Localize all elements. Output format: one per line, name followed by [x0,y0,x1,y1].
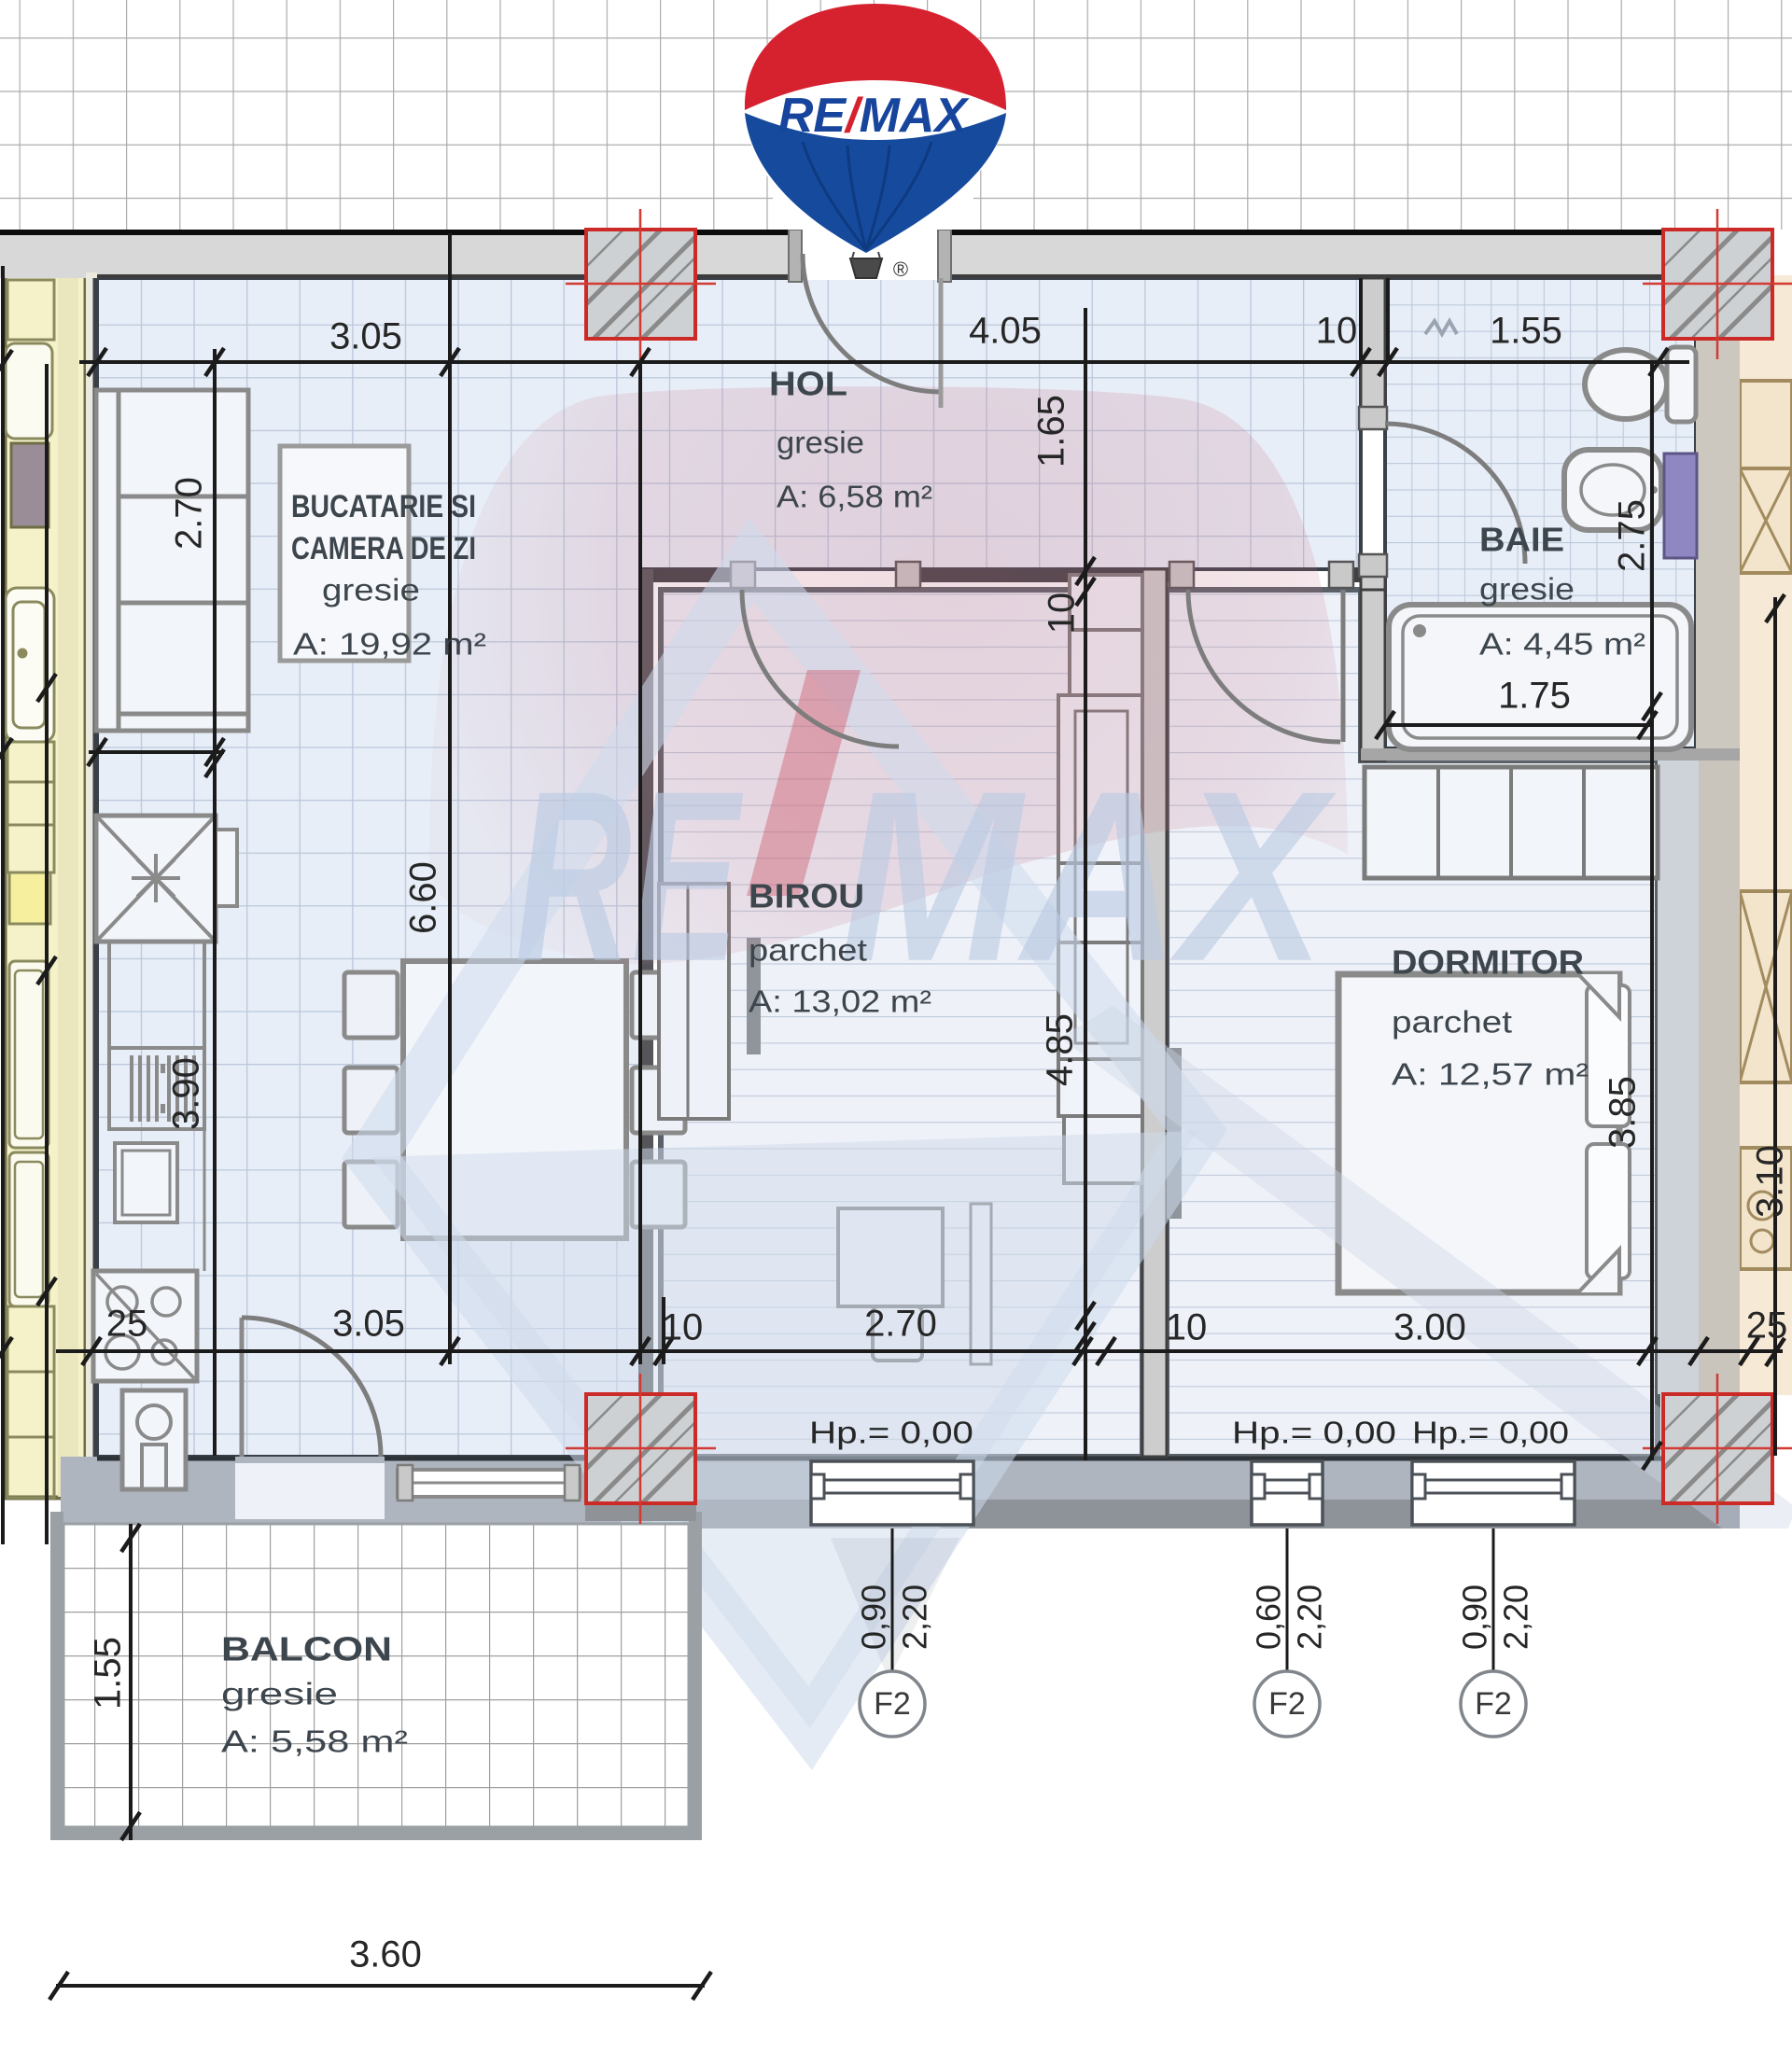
svg-text:3.05: 3.05 [332,1304,405,1345]
svg-text:DORMITOR: DORMITOR [1392,943,1584,982]
svg-text:4.05: 4.05 [969,311,1042,352]
svg-text:10: 10 [1316,311,1358,352]
svg-text:25: 25 [106,1304,148,1345]
svg-text:10: 10 [1166,1307,1208,1348]
svg-text:25: 25 [1746,1305,1788,1347]
svg-text:0,90: 0,90 [855,1584,893,1650]
svg-text:2.70: 2.70 [864,1304,937,1345]
svg-text:Hp.= 0,00: Hp.= 0,00 [1412,1416,1569,1450]
svg-text:gresie: gresie [221,1677,338,1711]
svg-text:3.10: 3.10 [1750,1145,1791,1218]
svg-text:3.90: 3.90 [166,1057,207,1130]
svg-text:1.75: 1.75 [1498,676,1571,717]
svg-text:3.00: 3.00 [1393,1307,1466,1348]
svg-text:gresie: gresie [777,426,864,460]
svg-text:2.70: 2.70 [169,477,210,550]
svg-text:2,20: 2,20 [1497,1584,1535,1650]
svg-text:CAMERA DE ZI: CAMERA DE ZI [291,531,476,566]
svg-text:BALCON: BALCON [221,1630,392,1668]
svg-text:1.55: 1.55 [1490,311,1562,352]
svg-text:parchet: parchet [1392,1005,1512,1040]
svg-text:0,90: 0,90 [1456,1584,1494,1650]
svg-text:A: 13,02 m²: A: 13,02 m² [749,984,931,1019]
svg-text:A: 4,45 m²: A: 4,45 m² [1479,627,1645,662]
svg-text:F2: F2 [1475,1686,1512,1722]
svg-text:A: 6,58 m²: A: 6,58 m² [777,480,932,514]
svg-text:Hp.= 0,00: Hp.= 0,00 [809,1416,973,1450]
svg-text:RE/MAX: RE/MAX [778,89,971,143]
svg-text:HOL: HOL [769,365,847,403]
svg-text:3.05: 3.05 [329,316,402,357]
svg-text:BAIE: BAIE [1479,521,1564,559]
svg-text:10: 10 [662,1307,704,1348]
svg-text:parchet: parchet [749,933,867,968]
svg-text:1.55: 1.55 [88,1637,129,1710]
svg-text:gresie: gresie [1479,572,1575,607]
svg-text:10: 10 [1042,593,1083,635]
svg-text:A: 12,57 m²: A: 12,57 m² [1392,1057,1589,1092]
svg-text:®: ® [893,258,908,281]
svg-text:BUCATARIE SI: BUCATARIE SI [291,489,476,524]
svg-text:1.65: 1.65 [1031,395,1072,468]
svg-text:MAX: MAX [840,742,1337,1012]
svg-text:F2: F2 [1268,1686,1306,1722]
svg-text:Hp.= 0,00: Hp.= 0,00 [1232,1416,1396,1450]
svg-text:4.85: 4.85 [1040,1013,1081,1086]
svg-text:2,20: 2,20 [896,1584,934,1650]
svg-text:3.85: 3.85 [1603,1076,1644,1149]
svg-text:BIROU: BIROU [749,877,864,915]
svg-text:A: 5,58 m²: A: 5,58 m² [221,1724,408,1759]
svg-text:6.60: 6.60 [403,861,444,934]
svg-text:RE: RE [515,742,745,1012]
svg-text:F2: F2 [874,1686,911,1722]
svg-text:0,60: 0,60 [1250,1584,1288,1650]
svg-text:2.75: 2.75 [1612,499,1653,572]
svg-text:A: 19,92 m²: A: 19,92 m² [293,627,486,662]
svg-text:2,20: 2,20 [1291,1584,1329,1650]
svg-text:3.60: 3.60 [349,1934,422,1975]
svg-text:gresie: gresie [322,573,420,607]
